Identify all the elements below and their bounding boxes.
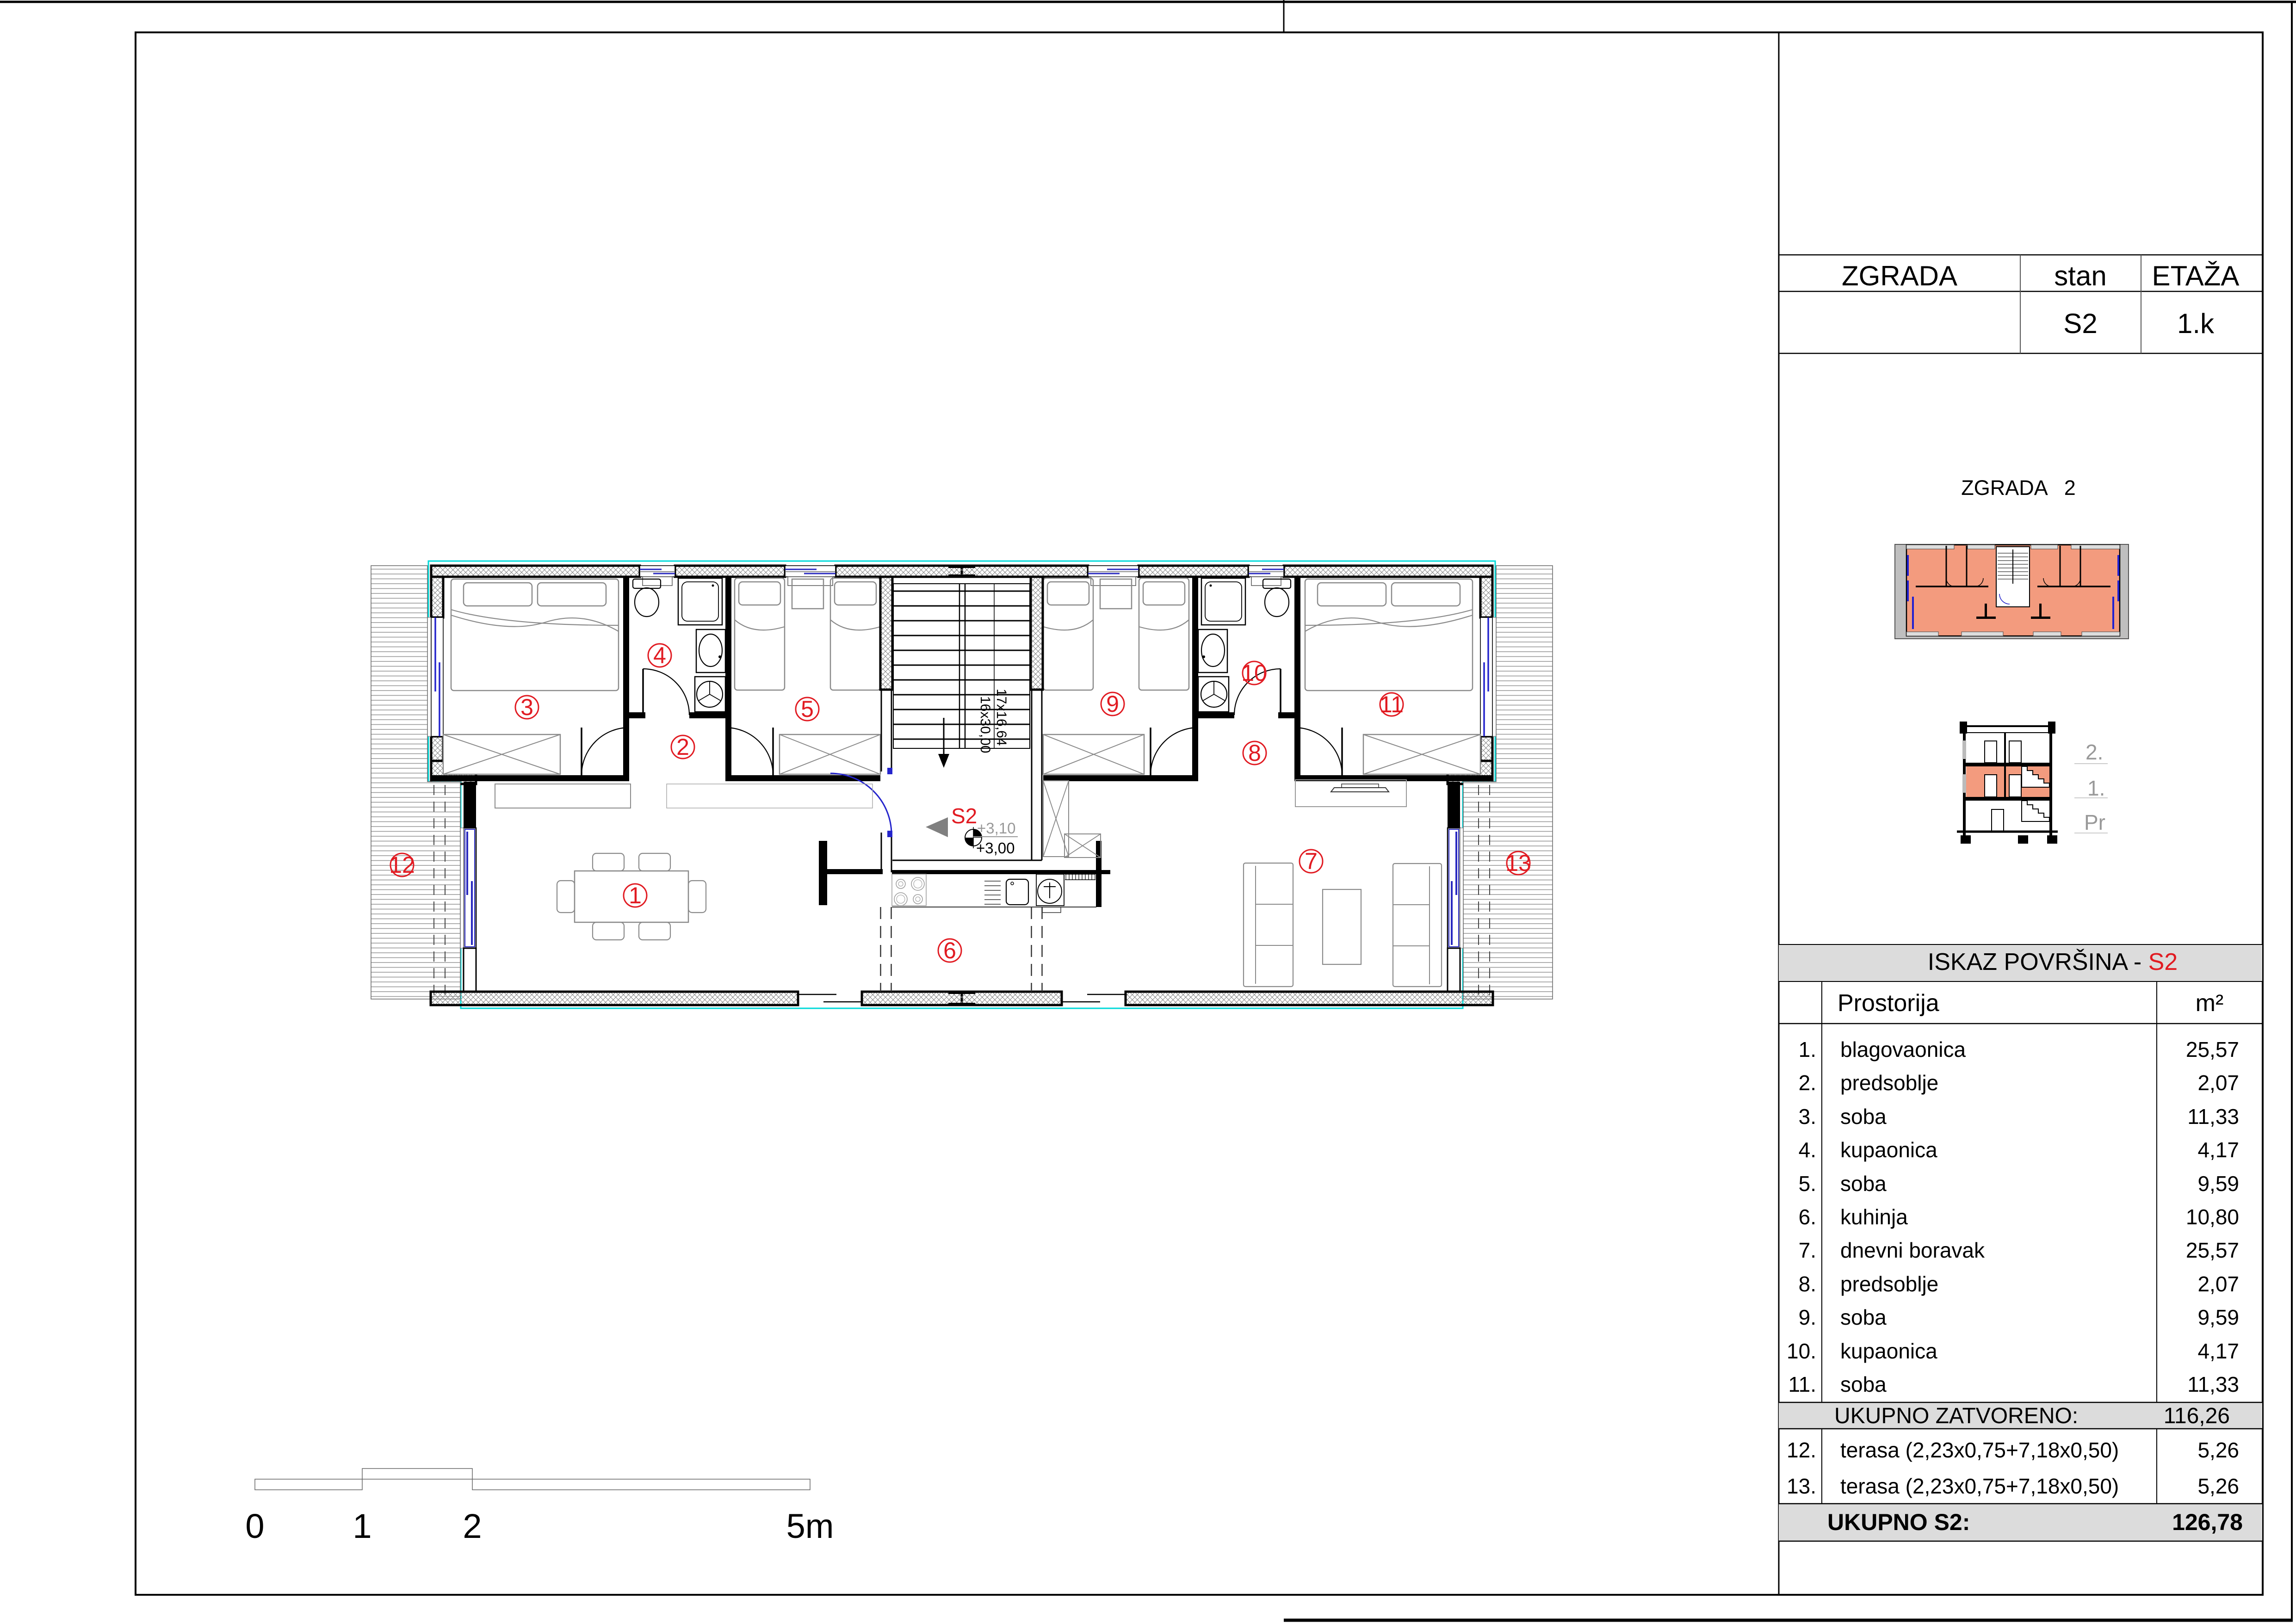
svg-text:3: 3 (520, 694, 533, 720)
svg-text:stan: stan (2054, 260, 2106, 291)
svg-text:ZGRADA: ZGRADA (1842, 260, 1957, 291)
svg-text:UKUPNO S2:: UKUPNO S2: (1827, 1509, 1970, 1535)
svg-text:kuhinja: kuhinja (1840, 1205, 1908, 1229)
svg-text:25,57: 25,57 (2186, 1238, 2239, 1262)
svg-text:predsoblje: predsoblje (1840, 1272, 1938, 1296)
svg-text:terasa (2,23x0,75+7,18x0,50): terasa (2,23x0,75+7,18x0,50) (1840, 1438, 2119, 1462)
svg-text:9,59: 9,59 (2197, 1172, 2239, 1196)
svg-text:soba: soba (1840, 1105, 1887, 1129)
svg-text:kupaonica: kupaonica (1840, 1138, 1937, 1162)
svg-text:10: 10 (1241, 660, 1267, 686)
svg-text:S2: S2 (2063, 308, 2097, 339)
svg-text:2,07: 2,07 (2197, 1272, 2239, 1296)
svg-text:11,33: 11,33 (2187, 1105, 2239, 1129)
svg-text:Pr: Pr (2084, 810, 2105, 834)
svg-text:7.: 7. (1799, 1238, 1816, 1262)
svg-text:9.: 9. (1799, 1305, 1816, 1329)
svg-text:12: 12 (389, 852, 415, 878)
svg-text:9: 9 (1106, 691, 1119, 717)
svg-text:+3,00: +3,00 (976, 839, 1015, 857)
svg-text:2: 2 (463, 1507, 482, 1545)
svg-text:6: 6 (943, 938, 956, 963)
svg-text:2.: 2. (2086, 740, 2103, 764)
svg-text:3.: 3. (1799, 1105, 1816, 1129)
svg-text:5,26: 5,26 (2197, 1474, 2239, 1498)
svg-text:2,07: 2,07 (2197, 1071, 2239, 1095)
svg-text:soba: soba (1840, 1372, 1887, 1396)
svg-text:predsoblje: predsoblje (1840, 1071, 1938, 1095)
svg-text:m²: m² (2196, 990, 2224, 1017)
svg-text:8.: 8. (1799, 1272, 1816, 1296)
svg-text:16x30,00: 16x30,00 (978, 696, 993, 753)
svg-text:ISKAZ POVRŠINA - S2: ISKAZ POVRŠINA - S2 (1928, 949, 2178, 975)
svg-text:soba: soba (1840, 1305, 1887, 1329)
svg-text:12.: 12. (1787, 1438, 1816, 1462)
svg-text:17x16,64: 17x16,64 (994, 689, 1009, 746)
svg-text:blagovaonica: blagovaonica (1840, 1037, 1966, 1061)
svg-text:11,33: 11,33 (2187, 1372, 2239, 1396)
svg-text:13: 13 (1505, 850, 1531, 876)
svg-text:11.: 11. (1788, 1372, 1816, 1396)
svg-text:4: 4 (653, 642, 666, 668)
svg-text:+3,10: +3,10 (977, 820, 1016, 837)
svg-text:4.: 4. (1799, 1138, 1816, 1162)
svg-text:7: 7 (1305, 848, 1318, 874)
svg-text:5,26: 5,26 (2197, 1438, 2239, 1462)
svg-text:4,17: 4,17 (2197, 1138, 2239, 1162)
svg-text:9,59: 9,59 (2197, 1305, 2239, 1329)
svg-text:soba: soba (1840, 1172, 1887, 1196)
svg-text:5m: 5m (786, 1507, 834, 1545)
svg-text:terasa (2,23x0,75+7,18x0,50): terasa (2,23x0,75+7,18x0,50) (1840, 1474, 2119, 1498)
svg-text:5: 5 (801, 696, 814, 722)
svg-text:1: 1 (629, 882, 642, 908)
svg-text:126,78: 126,78 (2172, 1509, 2243, 1535)
svg-text:8: 8 (1248, 740, 1261, 766)
svg-text:dnevni boravak: dnevni boravak (1840, 1238, 1985, 1262)
svg-text:116,26: 116,26 (2164, 1404, 2230, 1428)
svg-text:kupaonica: kupaonica (1840, 1339, 1937, 1363)
svg-text:4,17: 4,17 (2197, 1339, 2239, 1363)
svg-text:6.: 6. (1799, 1205, 1816, 1229)
svg-text:S2: S2 (951, 804, 977, 828)
svg-text:ZGRADA 2: ZGRADA 2 (1961, 476, 2076, 500)
svg-text:0: 0 (245, 1507, 264, 1545)
svg-text:1: 1 (353, 1507, 371, 1545)
svg-text:5.: 5. (1799, 1172, 1816, 1196)
svg-text:1.: 1. (2087, 776, 2105, 800)
svg-text:11: 11 (1380, 691, 1404, 717)
svg-text:Prostorija: Prostorija (1838, 990, 1939, 1017)
svg-text:2: 2 (676, 734, 689, 760)
svg-text:13.: 13. (1787, 1474, 1816, 1498)
svg-text:UKUPNO ZATVORENO:: UKUPNO ZATVORENO: (1834, 1404, 2078, 1428)
svg-text:1.k: 1.k (2177, 308, 2215, 339)
svg-text:1.: 1. (1799, 1037, 1816, 1061)
svg-text:ETAŽA: ETAŽA (2152, 260, 2240, 291)
svg-text:25,57: 25,57 (2186, 1037, 2239, 1061)
svg-text:2.: 2. (1799, 1071, 1816, 1095)
svg-text:10,80: 10,80 (2186, 1205, 2239, 1229)
svg-text:10.: 10. (1787, 1339, 1816, 1363)
